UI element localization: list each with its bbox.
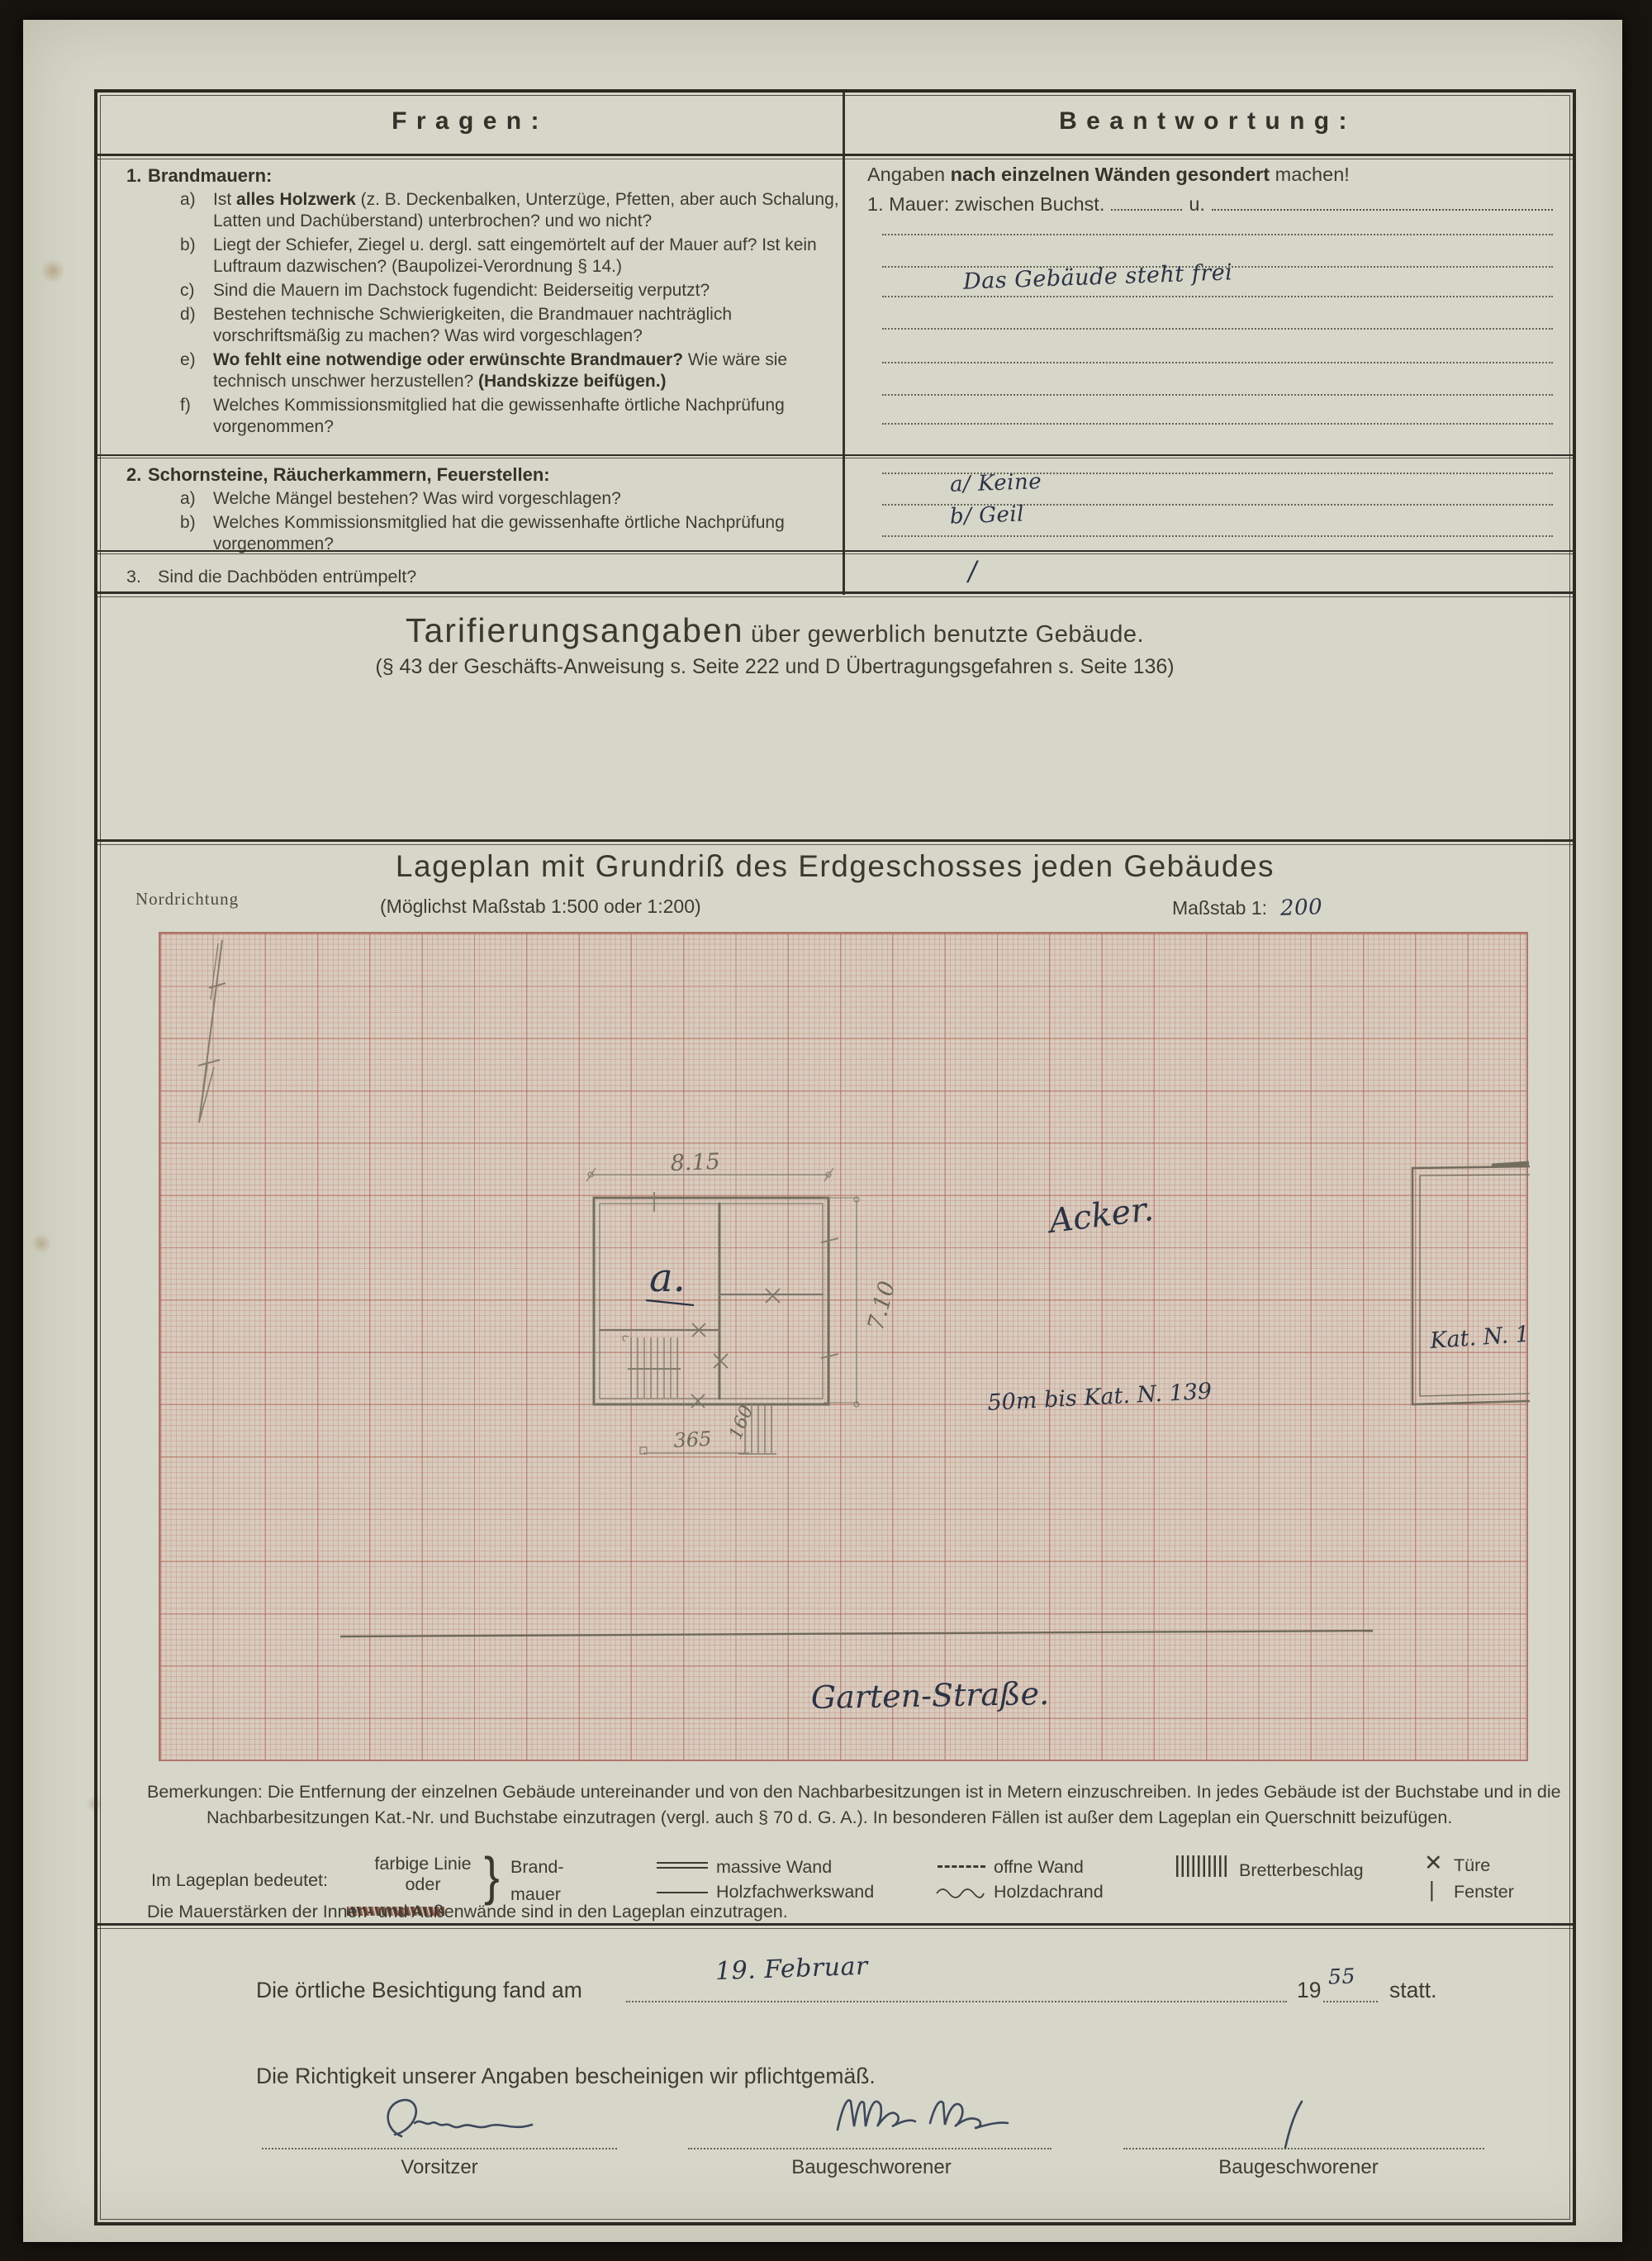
handwritten-wall-note: Das Gebäude steht frei: [963, 259, 1233, 294]
handwritten-answer-3: /: [967, 555, 978, 587]
section-divider: [97, 454, 1573, 458]
paper-stain: [41, 258, 64, 284]
north-arrow: [198, 940, 225, 1123]
plan-dim-porch: 365: [673, 1427, 712, 1452]
plan-building-a-label: a.: [649, 1255, 686, 1301]
question-1a: a)Ist alles Holzwerk (z. B. Deckenbalken…: [121, 189, 843, 232]
answer-line: [882, 423, 1553, 425]
door-marks: [691, 1289, 780, 1408]
tarifierung-heading: Tarifierungsangaben über gewerblich benu…: [97, 611, 1452, 679]
header-divider: [97, 154, 1573, 159]
handwritten-massstab-value: 200: [1280, 895, 1323, 921]
bemerkungen-paragraph: Bemerkungen: Die Entfernung der einzelne…: [147, 1779, 1563, 1831]
paper-stain: [31, 1233, 51, 1254]
plan-dim-height: 7.10: [863, 1279, 901, 1333]
street-line: [340, 1631, 1373, 1636]
massstab-line: Maßstab 1: 200: [1172, 895, 1323, 920]
handwritten-year: 55: [1328, 1964, 1356, 1988]
mauer-line-text: 1. Mauer: zwischen Buchst.: [867, 193, 1104, 216]
open-wall-symbol: [938, 1865, 985, 1868]
dimension-lines: [586, 1168, 859, 1454]
besichtigung-text: Die örtliche Besichtigung fand am: [256, 1978, 582, 2003]
answer-intro: Angaben nach einzelnen Wänden gesondert …: [867, 164, 1561, 186]
tarifierung-subtitle: (§ 43 der Geschäfts-Anweisung s. Seite 2…: [97, 655, 1452, 679]
richtigkeit-text: Die Richtigkeit unserer Angaben beschein…: [256, 2064, 876, 2089]
lageplan-subtitle: (Möglichst Maßstab 1:500 oder 1:200): [380, 895, 701, 918]
statt-text: statt.: [1389, 1978, 1436, 2003]
handwritten-answer-2a: a/ Keine: [950, 469, 1042, 497]
question-3-line: 3.Sind die Dachböden entrümpelt?: [126, 567, 416, 587]
section-divider: [97, 550, 1573, 554]
holzfachwerk-wall-symbol: [657, 1892, 708, 1893]
mauer-line-u: u.: [1189, 193, 1205, 216]
column-divider: [843, 93, 845, 595]
question-1c: c)Sind die Mauern im Dachstock fugendich…: [121, 280, 843, 302]
section-divider: [97, 591, 1573, 597]
building-a-outline: [594, 1198, 828, 1404]
massstab-label: Maßstab 1:: [1172, 897, 1267, 919]
legend-tuere: Türe: [1454, 1855, 1490, 1876]
plan-dim-steps: 160: [725, 1403, 757, 1442]
site-plan-drawing: 8.15 7.10 365 160 a. Acker. 50m bis Kat.…: [160, 933, 1530, 1763]
legend-farbige-linie: farbige Linieoder: [361, 1854, 485, 1895]
door-symbol: ✕: [1424, 1850, 1443, 1876]
fill-in-blank: [1111, 194, 1182, 211]
question-1e: e)Wo fehlt eine notwendige oder erwünsch…: [121, 349, 843, 392]
signature-line-3: [1123, 2148, 1484, 2149]
legend-label: Im Lageplan bedeutet:: [151, 1870, 328, 1891]
wood-roof-edge-symbol: [935, 1885, 985, 1900]
window-symbol: |: [1429, 1877, 1435, 1902]
sig1-label: Vorsitzer: [344, 2156, 534, 2179]
signature-line-2: [688, 2148, 1051, 2149]
plan-street-label: Garten-Straße.: [810, 1675, 1049, 1716]
question-1-block: 1.Brandmauern: a)Ist alles Holzwerk (z. …: [121, 165, 843, 440]
plan-distance-note: 50m bis Kat. N. 139: [987, 1379, 1213, 1416]
legend-massive-wand: massive Wand: [716, 1857, 832, 1878]
question-2a: a)Welche Mängel bestehen? Was wird vorge…: [121, 488, 843, 510]
fill-in-blank: [1212, 194, 1553, 211]
bemerkungen-text: Die Entfernung der einzelnen Gebäude unt…: [206, 1782, 1561, 1827]
nordrichtung-label: Nordrichtung: [135, 889, 239, 910]
legend-holzdachrand: Holzdachrand: [994, 1882, 1104, 1902]
legend-offne-wand: offne Wand: [994, 1857, 1084, 1878]
lageplan-title: Lageplan mit Grundriß des Erdgeschosses …: [97, 849, 1573, 884]
answer-line: [882, 328, 1553, 330]
graph-paper: 8.15 7.10 365 160 a. Acker. 50m bis Kat.…: [159, 932, 1528, 1761]
handwritten-answer-2b: b/ Geil: [950, 501, 1025, 529]
massive-wall-symbol: [657, 1862, 708, 1869]
neighbor-building-outline: [1412, 1163, 1530, 1404]
legend-fenster: Fenster: [1454, 1882, 1514, 1902]
sig2-label: Baugeschworener: [776, 2156, 966, 2179]
answer-line: [882, 362, 1553, 363]
section-divider: [97, 1923, 1573, 1929]
plan-neighbor-label: Kat. N. 134: [1428, 1319, 1530, 1354]
fragen-header: Fragen:: [97, 107, 843, 135]
answer-line: [882, 296, 1553, 297]
question-1b: b)Liegt der Schiefer, Ziegel u. dergl. s…: [121, 235, 843, 278]
question-2b: b)Welches Kommissionsmitglied hat die ge…: [121, 512, 843, 555]
legend-brandmauer: Brand-mauer: [510, 1857, 564, 1905]
legend-bretterbeschlag: Bretterbeschlag: [1239, 1860, 1364, 1881]
handwritten-date: 19. Februar: [714, 1952, 868, 1986]
scanned-form-screenshot: { "header": { "fragen": "Fragen:", "bean…: [0, 0, 1652, 2261]
form-frame: Fragen: Beantwortung: 1.Brandmauern: a)I…: [94, 89, 1576, 2225]
answer-line: [882, 394, 1553, 396]
plan-dim-width: 8.15: [670, 1149, 720, 1176]
signature-line-1: [262, 2148, 617, 2149]
legend-holzfachwerkswand: Holzfachwerkswand: [716, 1882, 874, 1902]
legend-brace: }: [484, 1845, 500, 1907]
staircase: [623, 1336, 681, 1398]
mauerstaerken-note: Die Mauerstärken der Innen- und Außenwän…: [147, 1902, 788, 1922]
answer-line: [882, 234, 1553, 235]
year-printed: 19: [1297, 1978, 1321, 2003]
answer-line: [882, 535, 1553, 537]
beantwortung-header: Beantwortung:: [844, 107, 1571, 135]
question-1f: f)Welches Kommissionsmitglied hat die ge…: [121, 395, 843, 438]
year-fill-line: [1323, 2001, 1378, 2002]
bemerkungen-label: Bemerkungen:: [147, 1782, 263, 1802]
question-2-block: 2.Schornsteine, Räucherkammern, Feuerste…: [121, 464, 843, 558]
question-1-title: 1.Brandmauern:: [121, 165, 843, 187]
section-divider: [97, 839, 1573, 845]
board-cladding-symbol: [1176, 1855, 1229, 1877]
date-fill-line: [626, 2001, 1287, 2002]
ink-labels: a. Acker. 50m bis Kat. N. 139 Kat. N. 13…: [646, 1190, 1530, 1716]
sig3-label: Baugeschworener: [1203, 2156, 1393, 2179]
plan-field-label: Acker.: [1044, 1190, 1156, 1242]
answer-mauer-line: 1. Mauer: zwischen Buchst. u.: [867, 193, 1553, 216]
signature-baugeschworener-1: [833, 2090, 1023, 2152]
question-2-title: 2.Schornsteine, Räucherkammern, Feuerste…: [121, 464, 843, 486]
question-1d: d)Bestehen technische Schwierigkeiten, d…: [121, 304, 843, 347]
signature-vorsitzer: [378, 2093, 544, 2155]
paper-sheet: Fragen: Beantwortung: 1.Brandmauern: a)I…: [23, 20, 1622, 2242]
